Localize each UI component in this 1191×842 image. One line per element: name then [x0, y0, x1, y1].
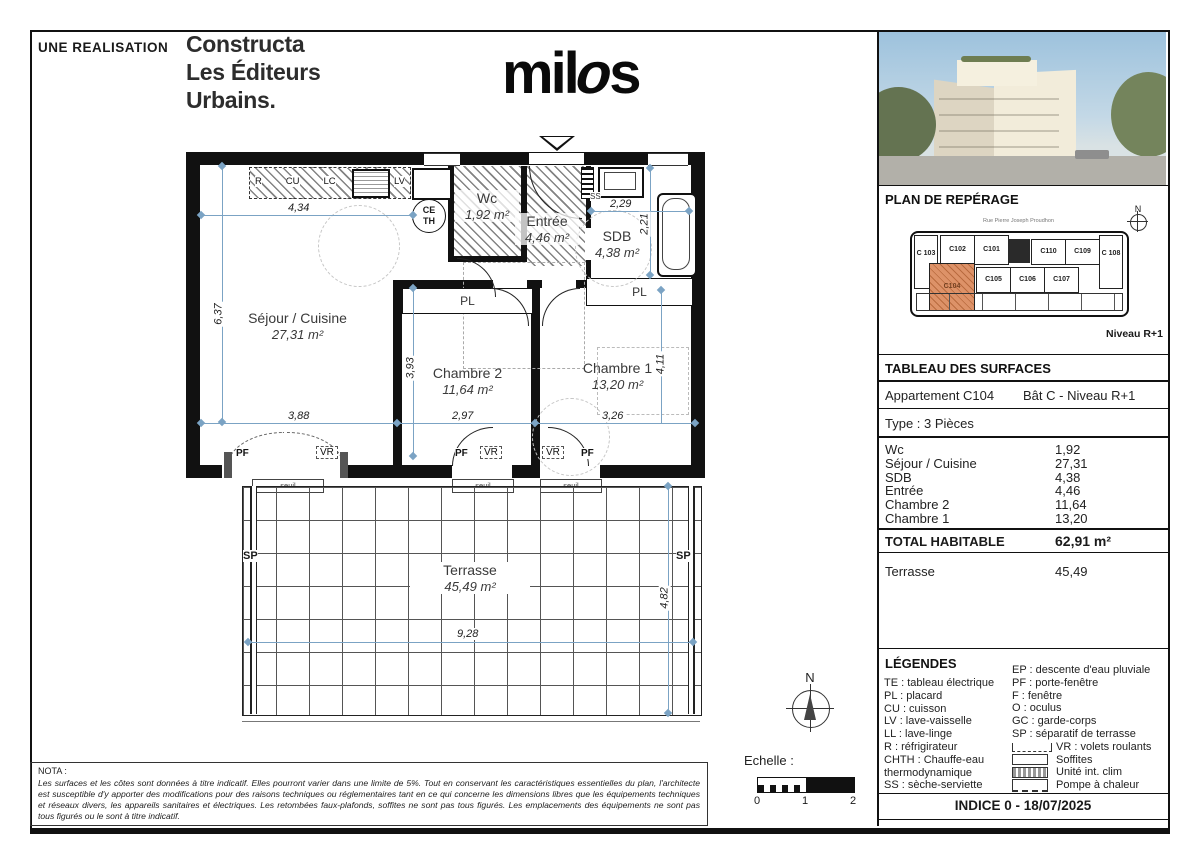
entrance-opening — [529, 153, 584, 164]
scale-tick-1: 1 — [802, 795, 808, 807]
dim-297: 2,97 — [450, 410, 475, 422]
building-photo — [879, 32, 1166, 185]
mini-north-label: N — [1130, 204, 1146, 214]
legend-item: PF : porte-fenêtre — [1012, 677, 1168, 690]
mini-unit-c109: C109 — [1065, 239, 1100, 265]
vr-symbol-icon — [1012, 743, 1052, 752]
surface-row-value: 1,92 — [1055, 442, 1080, 456]
legend-item: LL : lave-linge — [884, 728, 1012, 741]
dashed-circle-sejour — [318, 205, 400, 287]
mini-north-ew — [1127, 221, 1148, 222]
room-terrasse: Terrasse 45,49 m² — [410, 562, 530, 594]
legend-left-column: TE : tableau électrique PL : placard CU … — [884, 677, 1012, 792]
legend-symbol-row: Pompe à chaleur — [1012, 779, 1168, 792]
jamb-left — [224, 452, 232, 478]
terrace-ground-line — [242, 721, 700, 722]
compass-north-label: N — [790, 670, 830, 685]
surfaces-section: TABLEAU DES SURFACES Appartement C104 Bâ… — [878, 356, 1168, 648]
scale-tick-0: 0 — [754, 795, 760, 807]
window-top-1 — [424, 153, 460, 166]
wall-sejour-chambre2 — [393, 287, 402, 465]
mini-terrace-band — [916, 293, 1123, 311]
room-sejour-name: Séjour / Cuisine — [220, 310, 375, 327]
legend-symbol-label: VR : volets roulants — [1056, 741, 1151, 754]
surface-row-label: SDB — [885, 470, 1055, 484]
nota-box: NOTA : Les surfaces et les côtes sont do… — [30, 762, 708, 826]
dim-marker — [409, 452, 417, 460]
rule — [878, 436, 1168, 438]
surfaces-building: Bât C - Niveau R+1 — [1023, 388, 1135, 403]
surface-row-value: 11,64 — [1055, 497, 1087, 511]
mini-core — [1008, 239, 1030, 263]
surface-row: SDB4,38 — [885, 470, 1161, 484]
soffites-symbol-icon — [1012, 754, 1048, 765]
pompe-symbol-icon — [1012, 779, 1048, 792]
floor-plan: R CU LC LL LV CE TH SS PL PL — [0, 0, 877, 842]
surface-row-value: 4,46 — [1055, 483, 1080, 497]
surface-row-label: Séjour / Cuisine — [885, 456, 1055, 470]
legend-item: CU : cuisson — [884, 703, 1012, 716]
dim-326: 3,26 — [600, 410, 625, 422]
legend-item: R : réfrigirateur — [884, 741, 1012, 754]
legend-item: LV : lave-vaisselle — [884, 715, 1012, 728]
dim-393: 3,93 — [405, 355, 417, 380]
photo-car — [1075, 150, 1109, 159]
compass-needle-icon — [804, 694, 816, 720]
dim-637: 6,37 — [213, 301, 225, 326]
mini-north-icon — [1130, 214, 1147, 231]
sp-label-left: SP — [243, 550, 258, 562]
surfaces-terrace-value: 45,49 — [1055, 564, 1088, 579]
pf-label-sejour: PF — [236, 448, 249, 459]
mini-unit-c110: C110 — [1031, 239, 1066, 265]
room-chambre1-area: 13,20 m² — [565, 377, 670, 393]
ceth-unit: CE TH — [412, 199, 446, 233]
dim-388: 3,88 — [286, 410, 311, 422]
legend-item: SS : sèche-serviette — [884, 779, 1012, 792]
scale-label: Echelle : — [744, 753, 794, 768]
room-sejour: Séjour / Cuisine 27,31 m² — [220, 310, 375, 342]
pf-opening-chambre2 — [452, 465, 512, 478]
photo-building-penthouse — [957, 60, 1037, 86]
ceth-label-2: TH — [413, 216, 445, 227]
dim-229: 2,29 — [608, 198, 633, 210]
room-terrasse-area: 45,49 m² — [410, 579, 530, 595]
reperage-title: PLAN DE REPÉRAGE — [885, 192, 1019, 207]
washbasin-bowl — [604, 172, 636, 190]
mini-unit-c107: C107 — [1044, 267, 1079, 293]
vr-label-sejour: VR — [316, 446, 338, 459]
kitchen-label-lc: LC — [323, 176, 335, 187]
legend-symbol-label: Soffites — [1056, 754, 1093, 767]
terrace-separator-left — [250, 486, 257, 714]
room-wc: Wc 1,92 m² — [455, 190, 519, 222]
room-entree: Entrée 4,46 m² — [515, 213, 579, 245]
room-sdb-area: 4,38 m² — [585, 245, 649, 261]
compass: N — [790, 670, 830, 740]
entrance-arrow-inner — [543, 137, 571, 148]
surfaces-terrace-label: Terrasse — [885, 564, 935, 579]
dim-line-637 — [222, 166, 223, 423]
mini-unit-c106: C106 — [1010, 267, 1045, 293]
legend-item: thermodynamique — [884, 767, 1012, 780]
legend-symbol-label: Pompe à chaleur — [1056, 779, 1139, 792]
kitchen-label-lv: LV — [394, 176, 405, 187]
plan-sheet: UNE REALISATION Constructa Les Éditeurs … — [0, 0, 1191, 842]
dim-928: 9,28 — [455, 628, 480, 640]
mini-unit-c108: C 108 — [1099, 235, 1123, 289]
scale-seg-bottom-left — [758, 785, 806, 792]
rule — [878, 552, 1168, 553]
nota-text: Les surfaces et les côtes sont données à… — [38, 778, 700, 822]
dim-marker — [218, 418, 226, 426]
surface-row: Wc1,92 — [885, 442, 1161, 456]
surface-row-label: Wc — [885, 442, 1055, 456]
sp-label-right: SP — [676, 550, 691, 562]
photo-floors-lines — [939, 92, 1059, 162]
legend-title: LÉGENDES — [885, 656, 957, 671]
reperage-street: Rue Pierre Joseph Proudhon — [983, 218, 1054, 224]
wall-left — [186, 152, 200, 478]
surface-row-label: Chambre 1 — [885, 511, 1055, 525]
legend-item: PL : placard — [884, 690, 1012, 703]
legend-symbol-row: VR : volets roulants — [1012, 741, 1168, 754]
room-chambre2: Chambre 2 11,64 m² — [415, 365, 520, 397]
rule — [878, 408, 1168, 409]
legend-item: TE : tableau électrique — [884, 677, 1012, 690]
room-chambre2-area: 11,64 m² — [415, 382, 520, 398]
mini-unit-c105: C105 — [976, 267, 1011, 293]
room-entree-area: 4,46 m² — [515, 230, 579, 246]
surface-row-label: Entrée — [885, 483, 1055, 497]
dim-221: 2,21 — [639, 211, 651, 236]
surfaces-type: Type : 3 Pièces — [885, 416, 974, 431]
surface-row-label: Chambre 2 — [885, 497, 1055, 511]
scale-bar — [757, 777, 855, 793]
legend-right-column: EP : descente d'eau pluviale PF : porte-… — [1012, 664, 1168, 792]
dim-line-928 — [248, 642, 694, 643]
legend-item: F : fenêtre — [1012, 690, 1168, 703]
dim-434: 4,34 — [286, 202, 311, 214]
room-wc-name: Wc — [455, 190, 519, 207]
room-entree-name: Entrée — [515, 213, 579, 230]
jamb-right — [340, 452, 348, 478]
reperage-section: PLAN DE REPÉRAGE Rue Pierre Joseph Proud… — [878, 185, 1168, 355]
ss-label: SS — [590, 192, 601, 201]
unite-clim-symbol-icon — [1012, 767, 1048, 778]
dim-482: 4,82 — [659, 585, 671, 610]
rule — [878, 528, 1168, 530]
scale-seg-top-right — [806, 778, 854, 785]
surfaces-total-value: 62,91 m² — [1055, 533, 1111, 549]
scale-tick-2: 2 — [850, 795, 856, 807]
surface-row-value: 13,20 — [1055, 511, 1088, 525]
mini-plan: C 103 C102 C101 C110 C109 C 108 C104 C10… — [910, 231, 1129, 317]
surfaces-title: TABLEAU DES SURFACES — [885, 361, 1051, 376]
dim-line-bottom — [201, 423, 696, 424]
terrace-separator-right — [688, 486, 695, 714]
room-terrasse-name: Terrasse — [410, 562, 530, 579]
legend-symbol-row: Soffites — [1012, 754, 1168, 767]
kitchen-label-r: R — [255, 176, 262, 187]
surface-row: Chambre 211,64 — [885, 497, 1161, 511]
photo-roof-plants — [961, 56, 1031, 62]
scale-seg-bottom-right — [806, 785, 854, 792]
indice-bar: INDICE 0 - 18/07/2025 — [878, 793, 1168, 820]
ceth-label-1: CE — [413, 205, 445, 216]
dim-411: 4,11 — [654, 352, 666, 377]
dim-line-434 — [201, 215, 413, 216]
pf-label-chambre2: PF — [455, 448, 468, 459]
legend-item: GC : garde-corps — [1012, 715, 1168, 728]
surfaces-rows: Wc1,92 Séjour / Cuisine27,31 SDB4,38 Ent… — [885, 442, 1161, 525]
terrace — [242, 486, 702, 716]
room-sejour-area: 27,31 m² — [220, 327, 375, 343]
legend-symbol-row: Unité int. clim — [1012, 766, 1168, 779]
surfaces-apartment: Appartement C104 — [885, 388, 994, 403]
legend-item: CHTH : Chauffe-eau — [884, 754, 1012, 767]
reperage-level: Niveau R+1 — [1106, 328, 1163, 340]
surface-row: Séjour / Cuisine27,31 — [885, 456, 1161, 470]
mini-unit-c102: C102 — [940, 235, 975, 265]
kitchen-label-cu: CU — [286, 176, 300, 187]
rule — [878, 380, 1168, 382]
photo-tree-right — [1111, 72, 1166, 157]
mini-unit-c101: C101 — [974, 235, 1009, 265]
room-chambre2-name: Chambre 2 — [415, 365, 520, 382]
legend-item: SP : séparatif de terrasse — [1012, 728, 1168, 741]
cupboard — [412, 168, 452, 200]
legend-item: O : oculus — [1012, 702, 1168, 715]
surface-row-value: 27,31 — [1055, 456, 1088, 470]
legend-item: EP : descente d'eau pluviale — [1012, 664, 1168, 677]
legend-symbol-label: Unité int. clim — [1056, 766, 1122, 779]
surface-row-value: 4,38 — [1055, 470, 1080, 484]
kitchen-sink — [352, 169, 390, 198]
nota-title: NOTA : — [38, 766, 700, 778]
window-top-2 — [648, 153, 688, 166]
room-wc-area: 1,92 m² — [455, 207, 519, 223]
photo-tree-left — [879, 87, 936, 162]
surface-row: Chambre 113,20 — [885, 511, 1161, 525]
legend-section: LÉGENDES TE : tableau électrique PL : pl… — [878, 648, 1168, 793]
surfaces-total-label: TOTAL HABITABLE — [885, 534, 1005, 549]
surface-row: Entrée4,46 — [885, 483, 1161, 497]
vr-label-chambre2: VR — [480, 446, 502, 459]
